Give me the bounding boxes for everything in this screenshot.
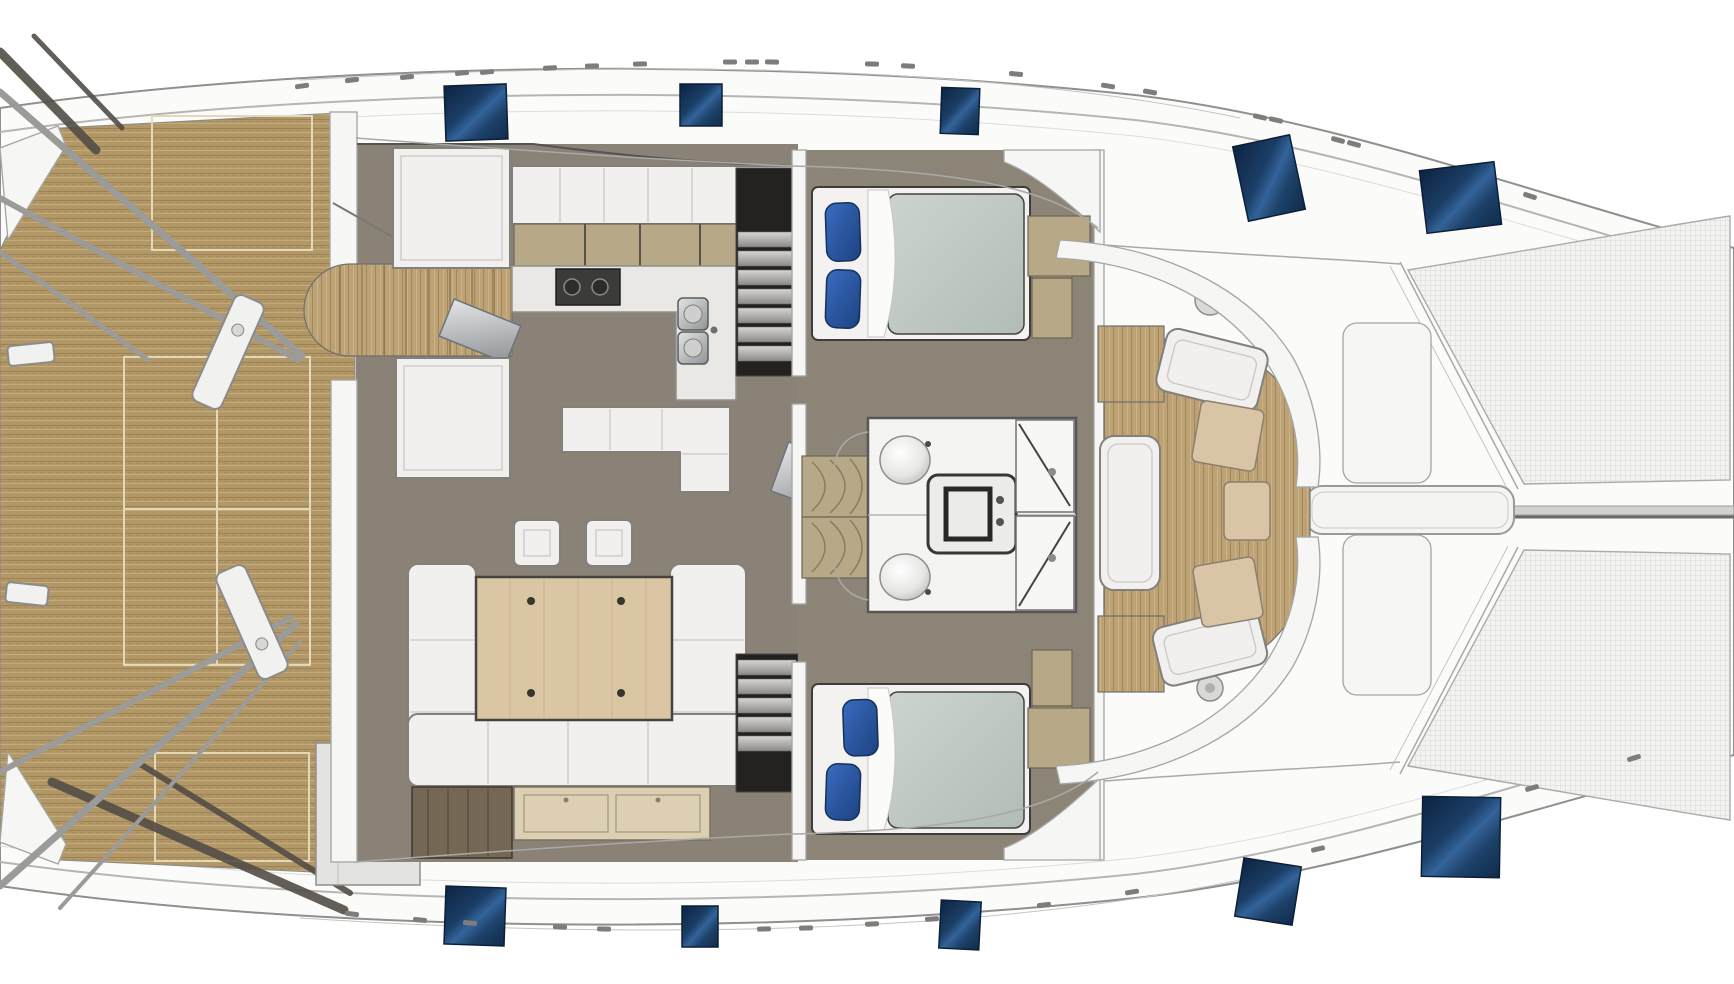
shower-port-handle bbox=[1048, 468, 1056, 476]
stove-burner-1 bbox=[564, 279, 580, 295]
berth-port-pillow-2 bbox=[825, 269, 861, 328]
aft-bulkhead-upper bbox=[330, 112, 357, 268]
stair-tread bbox=[738, 308, 796, 323]
stair-tread bbox=[738, 679, 796, 694]
cockpit-cushion-3 bbox=[1192, 556, 1264, 628]
stove-burner-2 bbox=[592, 279, 608, 295]
cockpit-cushion-2b bbox=[1224, 482, 1270, 540]
wc-detail-1 bbox=[996, 496, 1004, 504]
stair-tread bbox=[738, 251, 796, 266]
bowsprit bbox=[1510, 506, 1734, 515]
basin-port-faucet bbox=[925, 441, 931, 447]
stair-tread bbox=[738, 232, 796, 247]
deck-cleat bbox=[765, 59, 779, 64]
stair-tread bbox=[738, 736, 796, 751]
deck-hatch bbox=[940, 87, 980, 134]
berth-port-pillow-1 bbox=[825, 202, 861, 261]
foredeck-locker-starboard bbox=[1343, 535, 1431, 695]
stern-tab-2 bbox=[5, 582, 49, 606]
wc-detail-2 bbox=[996, 518, 1004, 526]
basin-port bbox=[880, 436, 930, 484]
deck-plan-image bbox=[0, 0, 1734, 984]
cabin-wall-1 bbox=[792, 150, 806, 376]
bow-walkway bbox=[1306, 486, 1514, 534]
sideboard-knob-1 bbox=[564, 798, 569, 803]
dinette-sofa-bottom bbox=[408, 714, 746, 786]
foredeck-locker-port bbox=[1343, 323, 1431, 483]
deck-cleat bbox=[723, 60, 737, 65]
deck-hatch bbox=[1421, 796, 1500, 877]
companionway-starboard bbox=[736, 654, 798, 792]
deck-hatch bbox=[680, 84, 722, 126]
deck-cleat bbox=[865, 61, 879, 66]
berth-starboard-duvet bbox=[888, 692, 1024, 828]
bathrooms bbox=[834, 418, 1076, 612]
deck-cleat bbox=[1101, 82, 1116, 89]
berth-starboard-pillow-2 bbox=[825, 763, 861, 820]
deck-hatch bbox=[1235, 858, 1302, 925]
dinette-table bbox=[476, 577, 672, 720]
pantry-unit bbox=[393, 148, 510, 268]
deck-cleat bbox=[757, 926, 771, 931]
berth-port-duvet bbox=[888, 194, 1024, 334]
cockpit-entry-steps-port bbox=[1098, 326, 1164, 402]
deck-hatch bbox=[682, 906, 718, 947]
dinette-stool-1 bbox=[514, 520, 560, 566]
deck-cleat bbox=[1009, 71, 1023, 77]
companionway-port bbox=[736, 168, 798, 376]
deck-cleat bbox=[633, 61, 647, 66]
deck-cleat bbox=[543, 65, 557, 71]
basin-starboard-faucet bbox=[925, 589, 931, 595]
galley-faucet bbox=[711, 327, 718, 334]
table-leg-1 bbox=[527, 597, 535, 605]
shower-starboard-handle bbox=[1048, 554, 1056, 562]
wardrobe-forward-starboard bbox=[1028, 708, 1090, 768]
stair-tread bbox=[738, 346, 796, 361]
cockpit-entry-steps-starboard bbox=[1098, 616, 1164, 692]
table-leg-2 bbox=[617, 597, 625, 605]
sideboard-knob-2 bbox=[656, 798, 661, 803]
stair-tread bbox=[738, 289, 796, 304]
aft-bulkhead-lower bbox=[331, 380, 357, 862]
basin-starboard bbox=[880, 554, 930, 600]
table-leg-3 bbox=[527, 689, 535, 697]
deck-cleat bbox=[597, 926, 611, 931]
deck-cleat bbox=[925, 916, 939, 922]
deck-cleat bbox=[1143, 88, 1158, 95]
cockpit-bench-left bbox=[1100, 436, 1160, 590]
windlass-starboard-center bbox=[1205, 683, 1215, 693]
deck-hatch bbox=[444, 886, 506, 946]
stair-tread bbox=[738, 327, 796, 342]
deck-cleat bbox=[553, 924, 567, 930]
cockpit-stair bbox=[304, 264, 521, 363]
stair-tread bbox=[738, 717, 796, 732]
deck-cleat bbox=[585, 63, 599, 68]
deck-hatch bbox=[1419, 162, 1501, 234]
deck-plan-svg bbox=[0, 0, 1734, 984]
cabin-wall-3 bbox=[792, 662, 806, 860]
deck-hatch bbox=[444, 84, 508, 141]
wardrobes-mid bbox=[802, 456, 872, 578]
deck-cleat bbox=[799, 925, 813, 930]
stern-tab-1 bbox=[7, 342, 55, 367]
deck-cleat bbox=[865, 921, 879, 927]
dinette-stool-2 bbox=[586, 520, 632, 566]
deck-cleat bbox=[901, 63, 915, 69]
stair-tread bbox=[738, 698, 796, 713]
cockpit-cushion-1 bbox=[1191, 400, 1265, 472]
sink-basin-2-drain bbox=[684, 339, 702, 357]
sink-basin-1-drain bbox=[684, 305, 702, 323]
deck-cleat bbox=[745, 60, 759, 65]
deck-hatch bbox=[939, 900, 981, 950]
stair-tread bbox=[738, 270, 796, 285]
stair-tread bbox=[738, 660, 796, 675]
chart-table bbox=[396, 358, 510, 478]
berth-starboard-pillow-1 bbox=[842, 699, 878, 756]
table-leg-4 bbox=[617, 689, 625, 697]
